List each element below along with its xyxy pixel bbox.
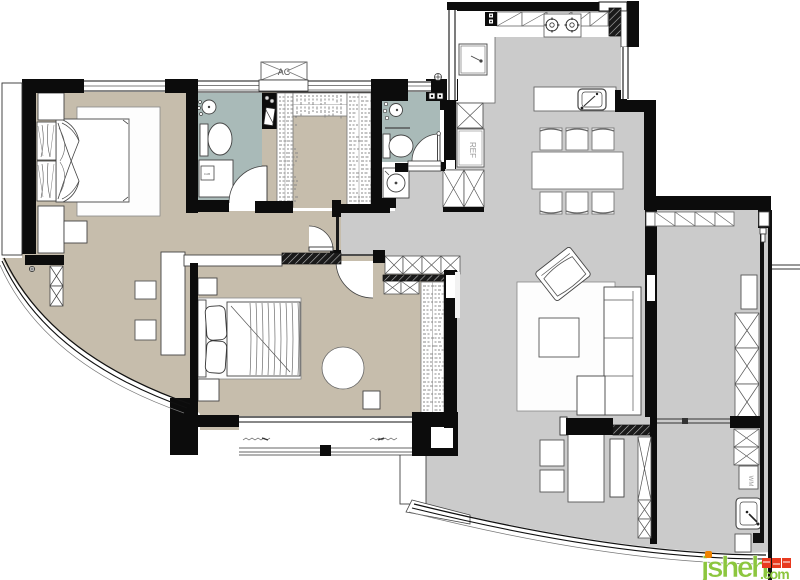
svg-text:.com: .com bbox=[760, 566, 789, 580]
svg-text:AC: AC bbox=[278, 67, 291, 77]
svg-text:CAB: CAB bbox=[204, 172, 210, 176]
svg-text:REF: REF bbox=[468, 142, 477, 158]
svg-text:WM: WM bbox=[747, 476, 753, 487]
